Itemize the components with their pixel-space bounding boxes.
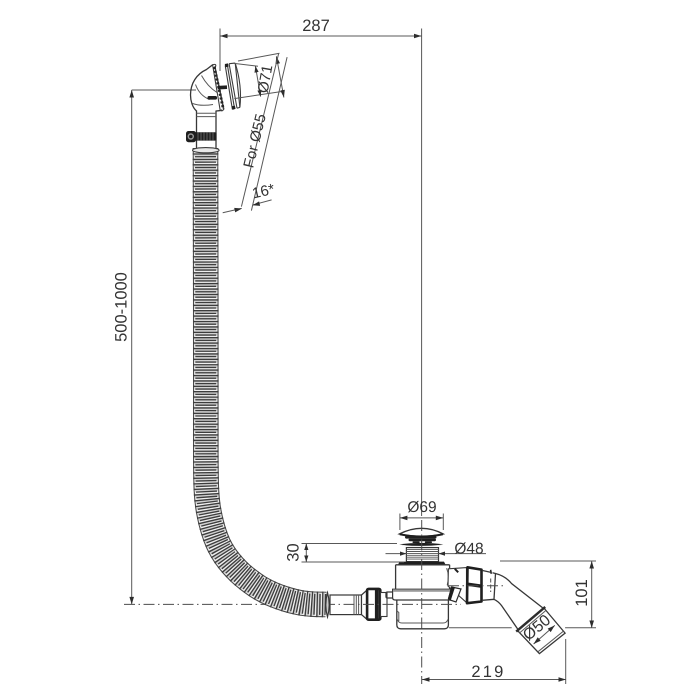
svg-text:101: 101: [573, 579, 591, 607]
svg-text:500-1000: 500-1000: [113, 272, 131, 342]
svg-text:219: 219: [471, 663, 505, 681]
svg-text:287: 287: [302, 17, 330, 35]
svg-text:Ø48: Ø48: [454, 540, 483, 557]
svg-text:30: 30: [285, 543, 303, 561]
svg-text:Ø69: Ø69: [407, 499, 436, 516]
